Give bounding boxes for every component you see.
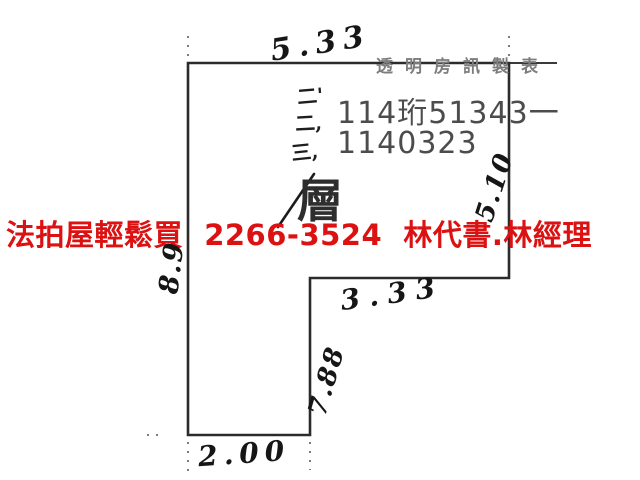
maker-watermark: 透明房訊製表 xyxy=(376,52,550,77)
case-number-line2: 1140323 xyxy=(337,126,478,161)
floor-mark-2: 二, xyxy=(294,106,322,136)
ad-banner-text: 法拍屋輕鬆買 2266-3524 林代書.林經理 xyxy=(6,212,592,254)
scanned-floor-plan-sheet: 透明房訊製表 5.33 二' 二, 三, 114珩51343一 1140323 … xyxy=(0,0,640,480)
floor-mark-3: 三, xyxy=(290,135,320,167)
dimension-bottom: 2.00 xyxy=(197,434,291,473)
